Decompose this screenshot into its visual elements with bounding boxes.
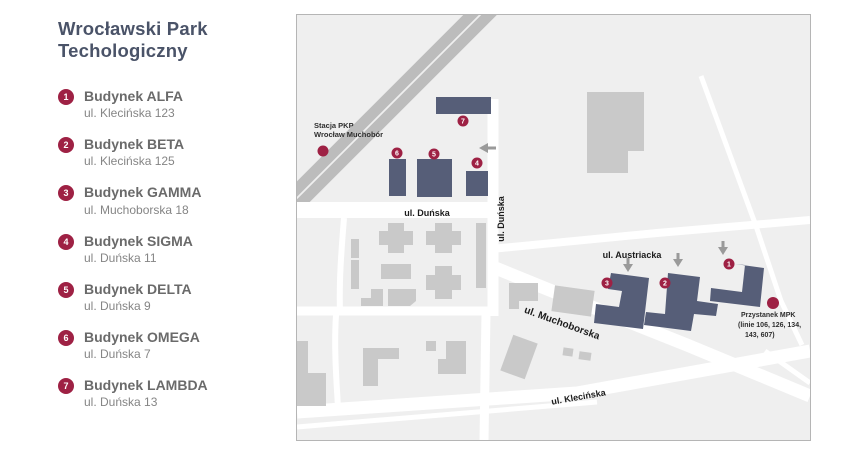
map-marker-5: 5 (429, 149, 440, 160)
map-marker-3-number: 3 (605, 281, 609, 288)
building-sigma-4 (466, 171, 488, 196)
gray-building-left-edge (297, 341, 326, 406)
legend-panel: Wrocławski Park Techologiczny 1 Budynek … (58, 18, 288, 409)
map-marker-3: 3 (602, 278, 613, 289)
map-marker-7-number: 7 (461, 119, 465, 126)
gray-building-slanted (500, 335, 537, 380)
building-omega-6 (389, 159, 406, 196)
station-label-line-1: Stacja PKP (314, 121, 354, 130)
bus-stop-marker-icon (767, 297, 779, 309)
gray-building-mirror-l (438, 341, 466, 374)
page-title: Wrocławski Park Techologiczny (58, 18, 288, 61)
building-address: ul. Klecińska 123 (84, 106, 183, 120)
building-name: Budynek DELTA (84, 281, 192, 297)
building-name: Budynek BETA (84, 136, 184, 152)
legend-item-omega: 6 Budynek OMEGA ul. Duńska 7 (58, 329, 288, 361)
gray-building-narrow-1 (351, 239, 359, 258)
legend-item-gamma: 3 Budynek GAMMA ul. Muchoborska 18 (58, 184, 288, 216)
map-marker-2: 2 (660, 278, 671, 289)
map-container: ul. Duńska ul. Duńska ul. Austriacka ul.… (296, 14, 811, 441)
building-beta-2 (644, 273, 718, 331)
map-marker-6: 6 (392, 148, 403, 159)
marker-badge-7: 7 (58, 378, 74, 394)
marker-badge-5: 5 (58, 282, 74, 298)
building-name: Budynek ALFA (84, 88, 183, 104)
marker-badge-4: 4 (58, 234, 74, 250)
street-label-austriacka: ul. Austriacka (603, 250, 663, 260)
map-marker-4-number: 4 (475, 161, 479, 168)
gray-building-rotated (551, 285, 594, 316)
building-address: ul. Duńska 13 (84, 395, 208, 409)
gray-dash-1 (562, 347, 573, 356)
map-svg: ul. Duńska ul. Duńska ul. Austriacka ul.… (297, 15, 810, 440)
title-line-1: Wrocławski Park (58, 18, 288, 40)
legend-item-lambda: 7 Budynek LAMBDA ul. Duńska 13 (58, 377, 288, 409)
building-address: ul. Muchoborska 18 (84, 203, 201, 217)
station-label-line-2: Wrocław Muchobór (314, 130, 383, 139)
marker-badge-1: 1 (58, 89, 74, 105)
road-campus-left (340, 218, 344, 313)
building-name: Budynek SIGMA (84, 233, 193, 249)
gray-building-l-small (361, 289, 383, 306)
gray-building-tiny (426, 341, 436, 351)
map-marker-2-number: 2 (663, 281, 667, 288)
street-label-dunska-vertical: ul. Duńska (496, 195, 506, 242)
building-name: Budynek GAMMA (84, 184, 201, 200)
gray-dash-2 (579, 351, 592, 361)
gray-building-rect (381, 264, 411, 279)
gray-building-clipped (388, 289, 416, 306)
building-lambda-7 (436, 97, 491, 114)
building-address: ul. Klecińska 125 (84, 154, 184, 168)
map-marker-7: 7 (458, 116, 469, 127)
building-address: ul. Duńska 9 (84, 299, 192, 313)
legend-item-delta: 5 Budynek DELTA ul. Duńska 9 (58, 281, 288, 313)
building-alfa-1 (710, 264, 764, 307)
road-south-branch (484, 313, 486, 440)
title-line-2: Techologiczny (58, 40, 288, 62)
map-marker-1-number: 1 (727, 262, 731, 269)
map-marker-1: 1 (724, 259, 735, 270)
map-marker-5-number: 5 (432, 152, 436, 159)
legend-item-alfa: 1 Budynek ALFA ul. Klecińska 123 (58, 88, 288, 120)
legend-item-beta: 2 Budynek BETA ul. Klecińska 125 (58, 136, 288, 168)
gray-building-top-right-l (587, 92, 644, 173)
map-marker-4: 4 (472, 158, 483, 169)
building-delta-5 (417, 159, 452, 197)
bus-stop-label-line-3: 143, 607) (745, 332, 775, 339)
building-address: ul. Duńska 7 (84, 347, 200, 361)
marker-badge-6: 6 (58, 330, 74, 346)
legend-item-sigma: 4 Budynek SIGMA ul. Duńska 11 (58, 233, 288, 265)
gray-cross-building-a (379, 223, 413, 253)
map-marker-6-number: 6 (395, 151, 399, 158)
arrow-down-icon-3 (718, 241, 728, 255)
gray-cross-building-b (426, 223, 461, 253)
gray-building-gamma-shape (363, 348, 399, 386)
building-address: ul. Duńska 11 (84, 251, 193, 265)
bus-stop-label-line-2: (linie 106, 126, 134, (738, 322, 801, 329)
gray-cross-building-c (426, 266, 461, 299)
gray-building-narrow-2 (351, 260, 359, 289)
station-marker-icon (318, 146, 329, 157)
arrow-down-icon-1 (623, 258, 633, 272)
building-legend: 1 Budynek ALFA ul. Klecińska 123 2 Budyn… (58, 88, 288, 409)
building-name: Budynek LAMBDA (84, 377, 208, 393)
gray-building-foot (509, 283, 538, 309)
road-bottom-left (335, 315, 338, 407)
street-label-dunska-horizontal: ul. Duńska (404, 208, 451, 218)
page: Wrocławski Park Techologiczny 1 Budynek … (0, 0, 842, 451)
building-name: Budynek OMEGA (84, 329, 200, 345)
bus-stop-label-line-1: Przystanek MPK (741, 312, 795, 319)
gray-building-tall (476, 223, 486, 288)
marker-badge-3: 3 (58, 185, 74, 201)
arrow-down-icon-2 (673, 253, 683, 267)
marker-badge-2: 2 (58, 137, 74, 153)
